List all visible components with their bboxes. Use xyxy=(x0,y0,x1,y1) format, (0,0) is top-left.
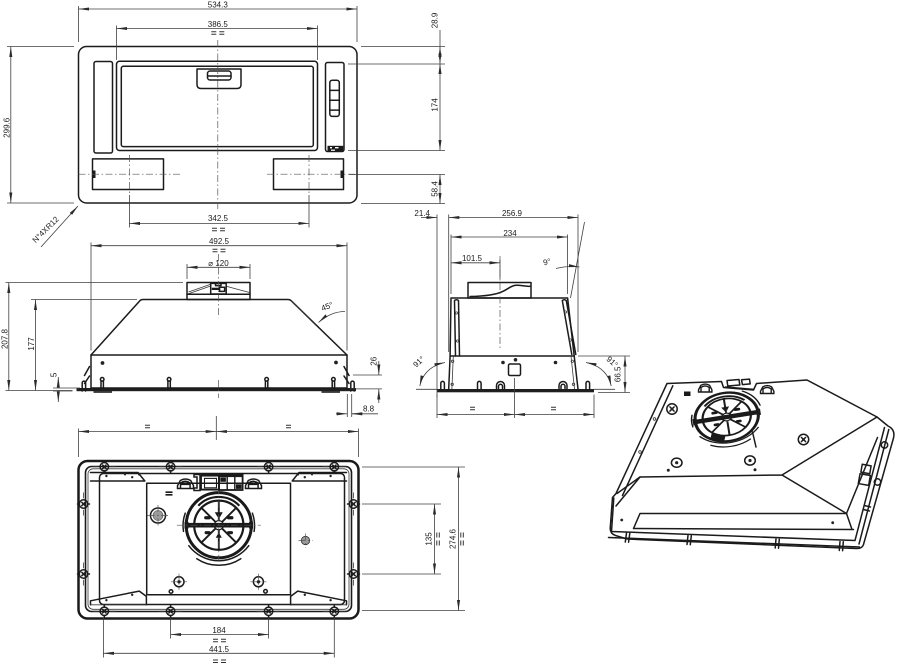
svg-text:101.5: 101.5 xyxy=(462,254,483,263)
svg-text:28.9: 28.9 xyxy=(431,12,440,28)
svg-text:256.9: 256.9 xyxy=(502,209,523,218)
svg-text:⌀ 120: ⌀ 120 xyxy=(208,259,229,268)
svg-text:5: 5 xyxy=(50,372,59,377)
svg-text:26: 26 xyxy=(370,356,379,365)
svg-text:21.4: 21.4 xyxy=(414,209,430,218)
svg-text:58.4: 58.4 xyxy=(431,181,440,197)
svg-text:66.5: 66.5 xyxy=(614,366,623,382)
svg-text:135: 135 xyxy=(425,532,434,546)
svg-text:177: 177 xyxy=(27,337,36,351)
svg-text:174: 174 xyxy=(430,98,439,112)
svg-text:299.6: 299.6 xyxy=(3,117,12,138)
svg-text:342.5: 342.5 xyxy=(208,214,229,223)
svg-text:207.8: 207.8 xyxy=(1,328,10,349)
svg-text:274.6: 274.6 xyxy=(449,528,458,549)
svg-text:386.5: 386.5 xyxy=(208,20,229,29)
svg-text:184: 184 xyxy=(212,626,226,635)
svg-text:492.5: 492.5 xyxy=(209,237,230,246)
svg-text:234: 234 xyxy=(503,229,517,238)
svg-text:534.3: 534.3 xyxy=(208,0,229,9)
svg-text:441.5: 441.5 xyxy=(209,645,230,654)
svg-text:8.8: 8.8 xyxy=(363,405,375,414)
